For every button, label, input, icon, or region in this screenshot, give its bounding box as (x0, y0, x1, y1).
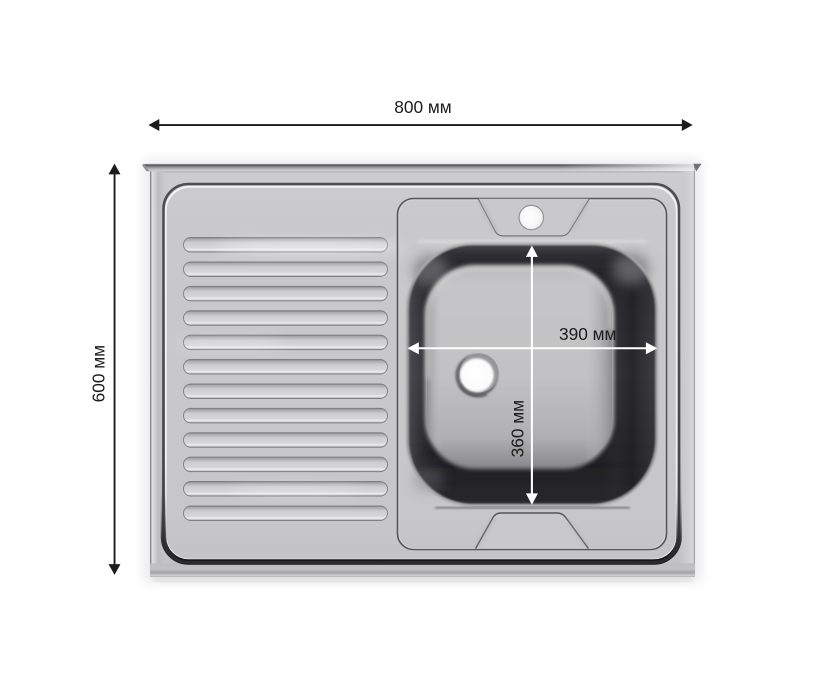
svg-text:600 мм: 600 мм (89, 345, 109, 402)
svg-text:360 мм: 360 мм (507, 400, 527, 457)
svg-text:800 мм: 800 мм (394, 97, 451, 117)
svg-text:390 мм: 390 мм (559, 324, 616, 344)
